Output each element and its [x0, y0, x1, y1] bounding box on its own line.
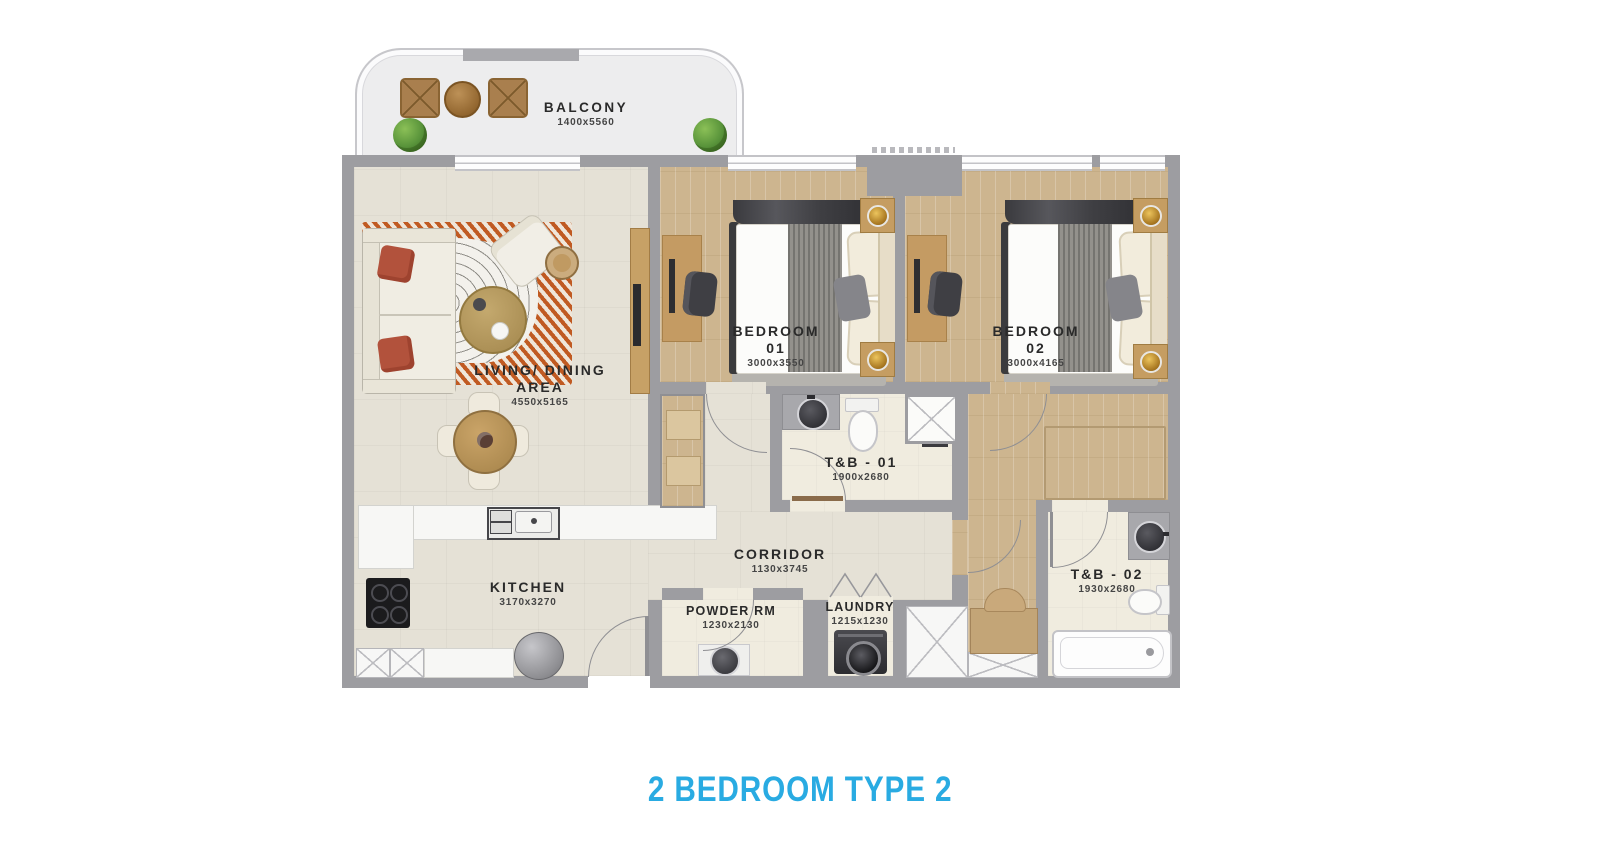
tb1-label: T&B - 01 1900x2680 — [781, 454, 941, 483]
closet-shelf-1 — [666, 410, 701, 440]
hallway-console — [970, 608, 1038, 654]
page: { "title": "2 BEDROOM TYPE 2", "rooms": … — [0, 0, 1600, 842]
laundry-name: LAUNDRY — [790, 600, 930, 615]
kitchen-name: KITCHEN — [428, 579, 628, 596]
kitchen-sink — [487, 507, 560, 540]
tb1-basin — [797, 398, 829, 430]
bedroom2-door-opening — [990, 382, 1050, 394]
coffee-table — [459, 286, 527, 354]
tb2-basin — [1134, 521, 1166, 553]
living-dims: 4550x5165 — [440, 397, 640, 408]
kitchen-appliance-2 — [390, 648, 424, 678]
kitchen-label: KITCHEN 3170x3270 — [428, 579, 628, 608]
dining-centerpiece — [477, 432, 493, 448]
balcony-name: BALCONY — [486, 100, 686, 116]
bedroom2-lamp-bottom — [1140, 351, 1162, 373]
kitchen-counter-left — [358, 505, 414, 569]
bedroom2-nightstand-bottom — [1133, 344, 1168, 379]
hallway-wardrobe-outline — [1044, 426, 1166, 500]
corner-window — [1100, 155, 1165, 171]
plant-right — [693, 118, 727, 152]
tb2-dims: 1930x2680 — [1027, 584, 1187, 595]
kitchen-cylinder — [514, 632, 564, 680]
hallway-door-opening — [952, 520, 968, 575]
bedroom2-label: BEDROOM 02 3000x4165 — [936, 323, 1136, 369]
sofa-pillow-top — [376, 244, 415, 283]
corridor-dims: 1130x3745 — [690, 564, 870, 575]
bedroom2-lamp-top — [1140, 205, 1162, 227]
bedroom1-curtain — [733, 200, 877, 224]
balcony-label: BALCONY 1400x5560 — [486, 100, 686, 128]
shaft-void-horizontal — [968, 652, 1038, 678]
bedroom1-nightstand-top — [860, 198, 895, 233]
bedroom1-dims: 3000x3550 — [676, 358, 876, 369]
bedroom1-monitor — [669, 259, 675, 313]
bedroom2-dims: 3000x4165 — [936, 358, 1136, 369]
tb2-bathtub-drain — [1146, 648, 1154, 656]
bedroom1-desk-chair — [682, 270, 718, 317]
bedroom1-label: BEDROOM 01 3000x3550 — [676, 323, 876, 369]
bedroom2-number: 02 — [936, 340, 1136, 357]
bedroom1-window — [728, 155, 856, 171]
living-label: LIVING/ DINING AREA 4550x5165 — [440, 362, 640, 408]
bedroom2-monitor — [914, 259, 920, 313]
plan-title: 2 BEDROOM TYPE 2 — [0, 770, 1600, 810]
tb1-dims: 1900x2680 — [781, 472, 941, 483]
powder-name: POWDER RM — [651, 604, 811, 619]
bedroom1-door-opening — [706, 382, 766, 394]
bedroom2-window — [950, 155, 1092, 171]
washing-machine — [834, 630, 887, 674]
bedroom1-name: BEDROOM — [676, 323, 876, 340]
window-pier — [867, 155, 962, 196]
corridor-label: CORRIDOR 1130x3745 — [690, 546, 870, 575]
tb1-name: T&B - 01 — [781, 454, 941, 471]
balcony-chair-left — [400, 78, 440, 118]
kitchen-counter-bottom — [424, 648, 514, 678]
tb2-vanity-counter — [1128, 512, 1170, 560]
bedroom2-name: BEDROOM — [936, 323, 1136, 340]
bedroom1-closet — [660, 394, 705, 508]
tb2-faucet — [1163, 532, 1169, 536]
coffee-table-bowl — [491, 322, 509, 340]
tv — [633, 284, 641, 346]
floor-plan: BALCONY 1400x5560 — [0, 0, 1600, 842]
corridor-name: CORRIDOR — [690, 546, 870, 563]
sofa-armrest-top — [363, 229, 455, 243]
cooktop — [366, 578, 410, 628]
laundry-bifold-doors — [828, 572, 893, 598]
tb2-bathtub — [1052, 630, 1172, 678]
tb2-door-leaf — [1050, 512, 1053, 567]
balcony-dims: 1400x5560 — [486, 117, 686, 128]
balcony-table — [444, 81, 481, 118]
balcony-top-wall — [463, 49, 579, 61]
tb1-door-opening — [790, 500, 845, 512]
coffee-table-tray — [473, 298, 486, 311]
tb1-vanity-counter — [782, 394, 840, 430]
powder-door-opening — [703, 588, 753, 600]
powder-dims: 1230x2130 — [651, 620, 811, 631]
sofa-cushion-line — [379, 314, 451, 316]
sofa-back — [363, 229, 380, 393]
dining-table — [453, 410, 517, 474]
burner-1 — [371, 584, 389, 602]
powder-basin — [710, 646, 740, 676]
kitchen-appliance-1 — [356, 648, 390, 678]
bedroom2-desk-chair — [927, 270, 963, 317]
living-name-line1: LIVING/ DINING — [440, 362, 640, 379]
living-name-line2: AREA — [440, 379, 640, 396]
powder-label: POWDER RM 1230x2130 — [651, 604, 811, 631]
side-table — [545, 246, 579, 280]
tb1-faucet — [807, 395, 815, 399]
tb2-door-opening — [1052, 500, 1108, 512]
sink-faucet — [531, 518, 537, 524]
tb1-shower — [905, 394, 958, 444]
plant-left — [393, 118, 427, 152]
bedroom2-curtain — [1005, 200, 1150, 224]
kitchen-dims: 3170x3270 — [428, 597, 628, 608]
plan-title-text: 2 BEDROOM TYPE 2 — [648, 770, 953, 810]
sink-basin-small-top — [490, 510, 512, 522]
entrance-door-leaf — [645, 616, 649, 676]
burner-2 — [390, 584, 408, 602]
sink-basin-small-bottom — [490, 522, 512, 534]
closet-shelf-2 — [666, 456, 701, 486]
bedroom2-nightstand-top — [1133, 198, 1168, 233]
window-ticks — [872, 147, 955, 153]
washer-door — [846, 641, 881, 676]
tb2-label: T&B - 02 1930x2680 — [1027, 566, 1187, 595]
tb1-toilet-bowl — [848, 410, 878, 452]
washer-panel — [838, 634, 883, 637]
sofa-pillow-bottom — [377, 335, 415, 373]
bedroom1-number: 01 — [676, 340, 876, 357]
tb2-name: T&B - 02 — [1027, 566, 1187, 583]
burner-4 — [390, 606, 408, 624]
balcony-slider-window — [455, 155, 580, 171]
burner-3 — [371, 606, 389, 624]
laundry-label: LAUNDRY 1215x1230 — [790, 600, 930, 627]
entrance-opening — [588, 676, 650, 688]
laundry-dims: 1215x1230 — [790, 616, 930, 627]
bedroom1-lamp-top — [867, 205, 889, 227]
